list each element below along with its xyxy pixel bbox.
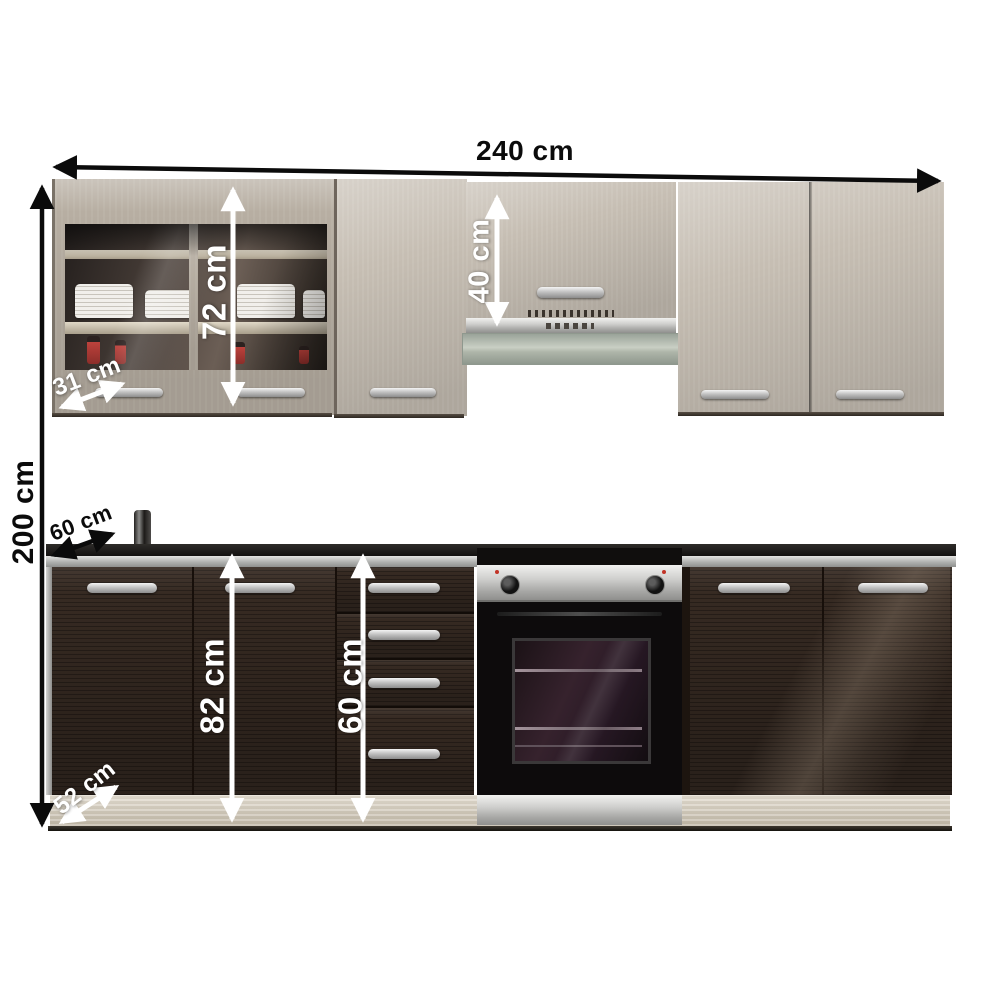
drawer-handle <box>368 630 440 640</box>
base-door-handle <box>718 583 790 593</box>
dimension-label-worktop-depth: 60 cm <box>47 501 115 545</box>
cabinet-shadow <box>334 414 464 418</box>
base-door-handle <box>225 583 295 593</box>
cabinet-shadow <box>678 412 944 416</box>
dimension-label-total-width: 240 cm <box>476 137 574 165</box>
oven-knob <box>645 575 665 595</box>
drawer-handle <box>368 583 440 593</box>
hood-glass-visor <box>462 333 682 365</box>
dimension-label-drawer-unit-height: 60 cm <box>334 638 367 734</box>
dimension-label-total-height: 200 cm <box>9 460 39 565</box>
base-bottom-edge <box>48 826 952 831</box>
sink-base-door <box>52 567 192 795</box>
drawer-handle <box>368 678 440 688</box>
base-right-door <box>822 567 952 795</box>
hood-vent-holes <box>528 310 614 317</box>
upper-right-handle <box>701 390 769 399</box>
oven-knob <box>500 575 520 595</box>
dimension-label-upper-cabinet-height: 72 cm <box>198 244 231 340</box>
cabinet-shadow <box>52 413 332 417</box>
hood-cabinet-handle <box>537 287 604 298</box>
oven-indicator-light <box>662 570 666 574</box>
dimension-label-hood-cabinet-height: 40 cm <box>466 219 495 304</box>
glass-door-handle <box>237 388 305 397</box>
dimension-label-base-cabinet-height: 82 cm <box>196 638 229 734</box>
upper-right-handle <box>836 390 904 399</box>
kitchen-dimension-diagram: 240 cm 200 cm 72 cm 40 cm 31 cm 60 cm 82… <box>0 0 1000 1000</box>
base-door-handle <box>858 583 928 593</box>
hood-buttons <box>546 323 594 329</box>
base-right-door <box>690 567 822 795</box>
upper-door-handle <box>370 388 436 397</box>
drawer-handle <box>368 749 440 759</box>
upper-door <box>334 179 467 416</box>
oven-top-filler <box>477 548 682 565</box>
oven-window-glare <box>515 641 648 761</box>
oven-door-handle <box>497 612 662 616</box>
oven-indicator-light <box>495 570 499 574</box>
oven-window <box>512 638 651 764</box>
base-door-handle <box>87 583 157 593</box>
oven-bottom-panel <box>477 795 682 825</box>
glass-door-handle <box>95 388 163 397</box>
cabinet-filler <box>682 567 690 795</box>
upper-right-door-divider <box>809 182 812 414</box>
